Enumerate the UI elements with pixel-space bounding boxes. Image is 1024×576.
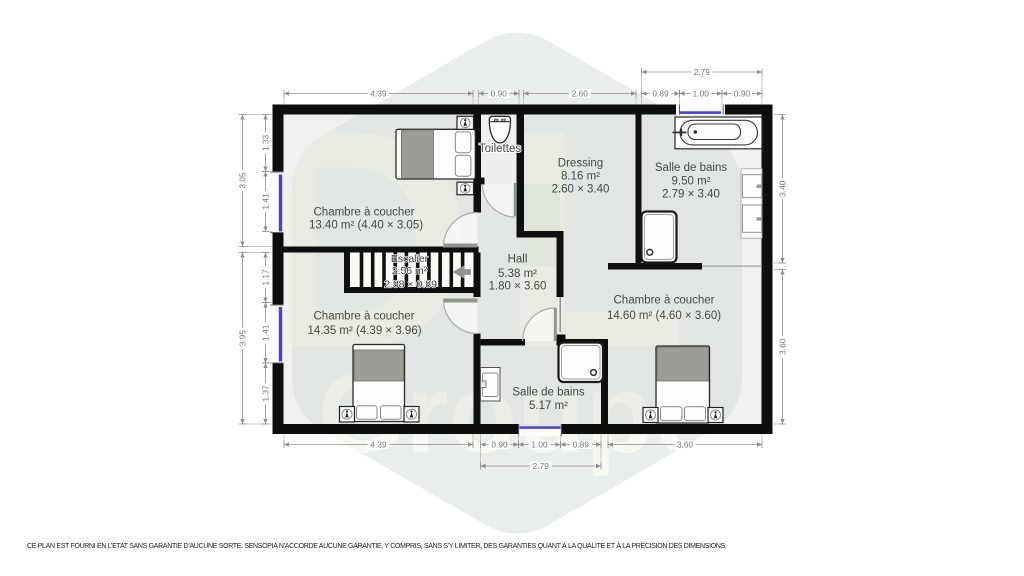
svg-text:2.79 × 3.40: 2.79 × 3.40 bbox=[662, 189, 720, 201]
svg-text:1.80 × 3.60: 1.80 × 3.60 bbox=[489, 281, 547, 293]
svg-text:14.35 m² (4.39 × 3.96): 14.35 m² (4.39 × 3.96) bbox=[307, 325, 421, 337]
svg-text:Salle de bains: Salle de bains bbox=[512, 387, 584, 399]
svg-text:1.00: 1.00 bbox=[693, 88, 710, 98]
svg-text:Chambre à coucher: Chambre à coucher bbox=[314, 311, 415, 323]
svg-text:1.33: 1.33 bbox=[260, 135, 270, 152]
svg-text:0.89: 0.89 bbox=[573, 439, 590, 449]
svg-text:Hall: Hall bbox=[508, 254, 528, 266]
svg-text:3.60: 3.60 bbox=[777, 338, 787, 355]
svg-text:2.88 × 0.89: 2.88 × 0.89 bbox=[384, 279, 437, 291]
svg-text:1.41: 1.41 bbox=[260, 324, 270, 341]
svg-text:0.90: 0.90 bbox=[491, 439, 508, 449]
svg-text:9.50 m²: 9.50 m² bbox=[672, 176, 711, 188]
svg-text:Dressing: Dressing bbox=[558, 158, 603, 170]
svg-text:0.90: 0.90 bbox=[734, 88, 751, 98]
svg-text:CE PLAN EST FOURNI EN L’ETAT S: CE PLAN EST FOURNI EN L’ETAT SANS GARANT… bbox=[27, 541, 727, 550]
svg-text:2.56 m²: 2.56 m² bbox=[392, 265, 428, 277]
svg-text:1.41: 1.41 bbox=[260, 193, 270, 210]
svg-text:14.60 m² (4.60 × 3.60): 14.60 m² (4.60 × 3.60) bbox=[607, 310, 721, 322]
svg-text:3.40: 3.40 bbox=[777, 180, 787, 197]
svg-text:0.90: 0.90 bbox=[491, 88, 508, 98]
svg-text:8.16 m²: 8.16 m² bbox=[561, 171, 600, 183]
svg-text:3.05: 3.05 bbox=[237, 172, 247, 189]
svg-text:1.17: 1.17 bbox=[260, 269, 270, 286]
svg-text:0.89: 0.89 bbox=[652, 88, 669, 98]
svg-text:2.79: 2.79 bbox=[533, 461, 550, 471]
svg-text:2.79: 2.79 bbox=[694, 67, 711, 77]
svg-text:3.60: 3.60 bbox=[677, 439, 694, 449]
svg-text:Salle de bains: Salle de bains bbox=[655, 162, 727, 174]
svg-text:13.40 m² (4.40 × 3.05): 13.40 m² (4.40 × 3.05) bbox=[309, 220, 423, 232]
svg-text:2.60: 2.60 bbox=[572, 88, 589, 98]
svg-text:1.00: 1.00 bbox=[531, 439, 548, 449]
svg-text:Escalier: Escalier bbox=[391, 253, 429, 265]
svg-text:4.39: 4.39 bbox=[370, 88, 387, 98]
svg-text:1.37: 1.37 bbox=[260, 385, 270, 402]
svg-text:Chambre à coucher: Chambre à coucher bbox=[314, 207, 415, 219]
svg-text:Chambre à coucher: Chambre à coucher bbox=[614, 295, 715, 307]
svg-text:2.60 × 3.40: 2.60 × 3.40 bbox=[552, 184, 610, 196]
svg-text:4.39: 4.39 bbox=[370, 439, 387, 449]
svg-text:5.38 m²: 5.38 m² bbox=[498, 268, 537, 280]
svg-text:3.95: 3.95 bbox=[237, 330, 247, 347]
svg-text:5.17 m²: 5.17 m² bbox=[529, 400, 568, 412]
svg-text:Toilettes: Toilettes bbox=[479, 143, 521, 155]
